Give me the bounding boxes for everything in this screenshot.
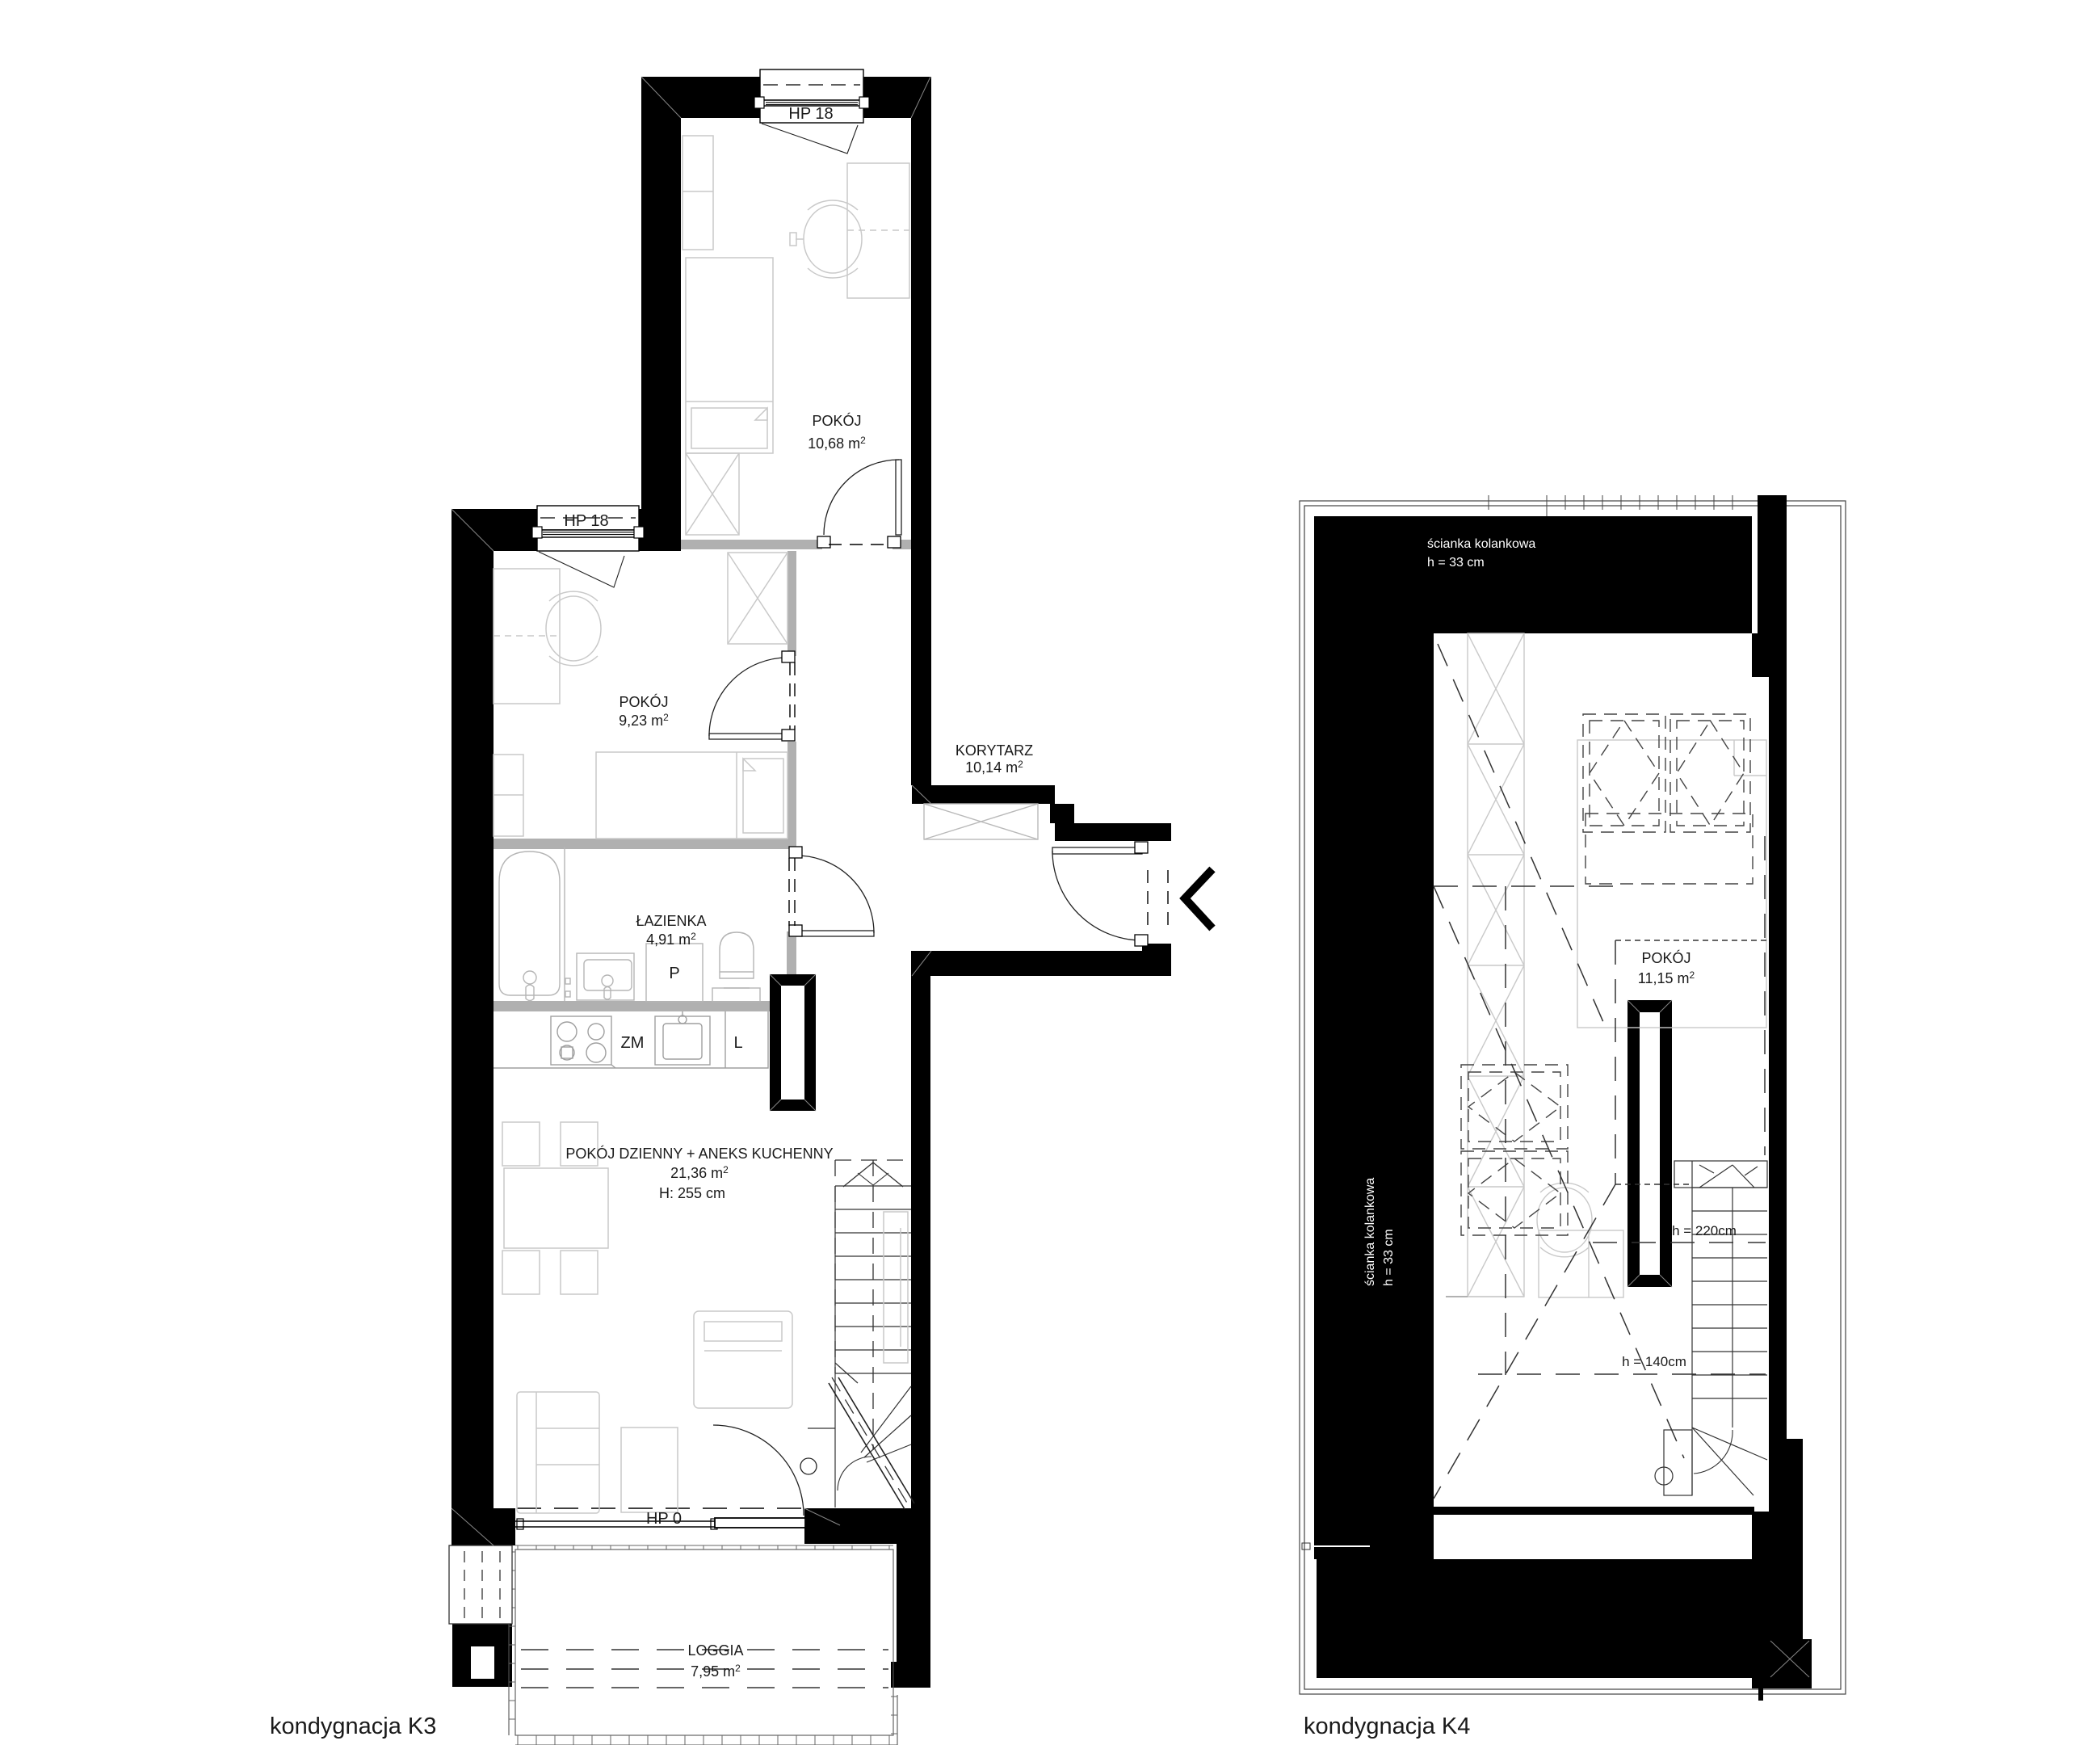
svg-text:HP 18: HP 18 bbox=[564, 512, 608, 530]
svg-text:4,91 m2: 4,91 m2 bbox=[646, 931, 696, 948]
svg-text:ścianka kolankowa: ścianka kolankowa bbox=[1363, 1178, 1377, 1286]
svg-text:KORYTARZ: KORYTARZ bbox=[955, 742, 1033, 759]
svg-text:POKÓJ DZIENNY + ANEKS KUCHENNY: POKÓJ DZIENNY + ANEKS KUCHENNY bbox=[565, 1145, 833, 1162]
svg-text:21,36 m2: 21,36 m2 bbox=[670, 1164, 729, 1181]
svg-text:ZM: ZM bbox=[621, 1034, 645, 1052]
svg-text:9,23 m2: 9,23 m2 bbox=[619, 712, 669, 729]
svg-text:POKÓJ: POKÓJ bbox=[619, 693, 668, 710]
svg-text:h = 220cm: h = 220cm bbox=[1672, 1223, 1737, 1238]
svg-text:h = 33 cm: h = 33 cm bbox=[1427, 556, 1485, 570]
svg-text:POKÓJ: POKÓJ bbox=[812, 412, 861, 429]
svg-text:11,15 m2: 11,15 m2 bbox=[1638, 969, 1695, 986]
svg-text:HP 18: HP 18 bbox=[788, 105, 833, 123]
svg-text:10,14 m2: 10,14 m2 bbox=[965, 759, 1023, 776]
svg-text:LOGGIA: LOGGIA bbox=[687, 1642, 743, 1659]
svg-text:L: L bbox=[733, 1034, 742, 1052]
svg-text:kondygnacja K3: kondygnacja K3 bbox=[270, 1713, 436, 1739]
svg-text:H: 255 cm: H: 255 cm bbox=[659, 1185, 725, 1201]
svg-text:7,95 m2: 7,95 m2 bbox=[691, 1663, 741, 1680]
svg-text:HP 0: HP 0 bbox=[646, 1510, 682, 1528]
svg-text:ŁAZIENKA: ŁAZIENKA bbox=[636, 913, 706, 929]
svg-text:ścianka kolankowa: ścianka kolankowa bbox=[1427, 537, 1535, 551]
svg-text:h = 33 cm: h = 33 cm bbox=[1382, 1229, 1396, 1286]
svg-text:POKÓJ: POKÓJ bbox=[1641, 949, 1690, 966]
svg-text:10,68 m2: 10,68 m2 bbox=[808, 435, 866, 452]
svg-text:kondygnacja K4: kondygnacja K4 bbox=[1304, 1713, 1470, 1739]
svg-text:h = 140cm: h = 140cm bbox=[1622, 1354, 1686, 1369]
svg-text:P: P bbox=[669, 965, 679, 982]
